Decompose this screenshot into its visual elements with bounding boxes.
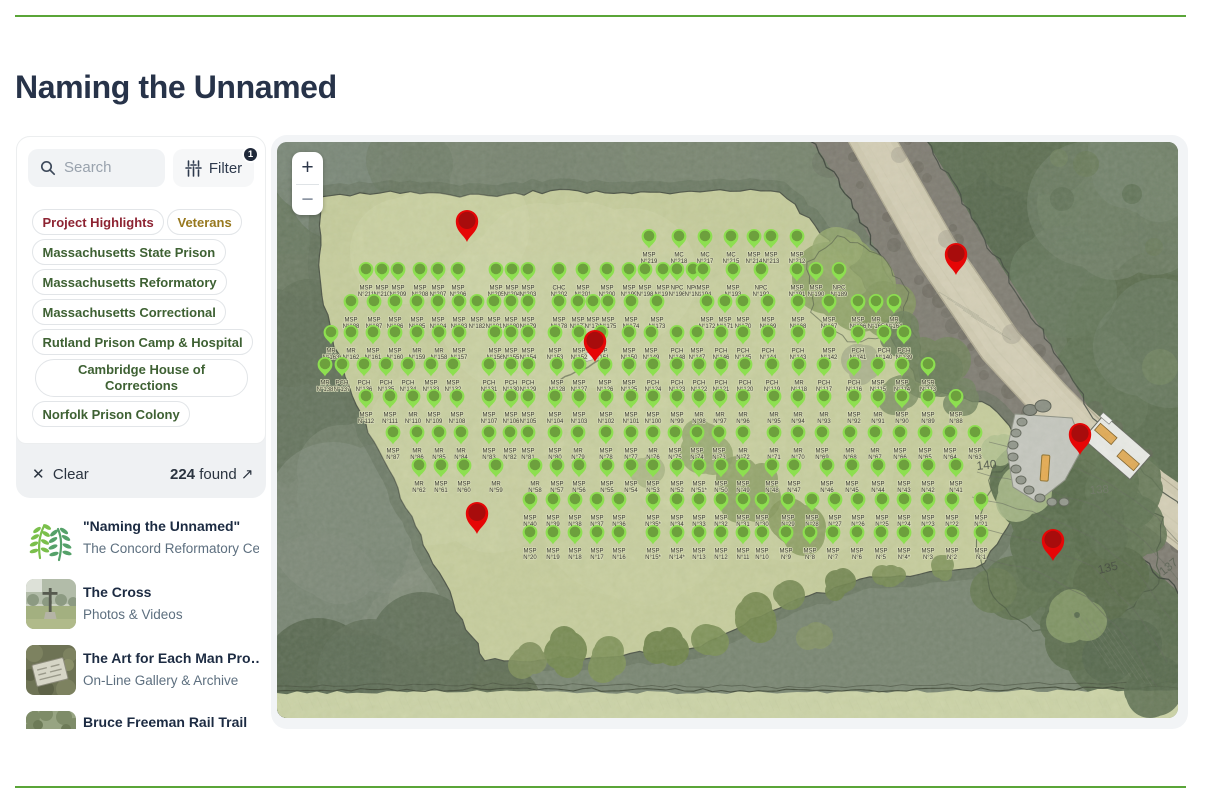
svg-text:N°89: N°89 [921, 419, 935, 425]
svg-text:N°82: N°82 [503, 455, 517, 461]
svg-text:MSP: MSP [822, 318, 835, 324]
svg-text:MSP: MSP [949, 413, 962, 419]
svg-text:MSP: MSP [521, 318, 534, 324]
svg-text:MSP: MSP [650, 318, 663, 324]
svg-text:MR: MR [326, 349, 336, 355]
svg-text:MSP: MSP [736, 549, 749, 555]
svg-text:N°60: N°60 [457, 488, 471, 494]
svg-text:MSP: MSP [692, 482, 705, 488]
svg-text:MSP: MSP [668, 449, 681, 455]
svg-text:MSP: MSP [656, 286, 669, 292]
svg-text:MSP: MSP [670, 549, 683, 555]
svg-text:MSP: MSP [921, 516, 934, 522]
svg-text:N°20: N°20 [523, 555, 537, 561]
svg-text:MSP: MSP [599, 413, 612, 419]
svg-text:MSP: MSP [388, 349, 401, 355]
svg-text:MSP: MSP [489, 286, 502, 292]
svg-text:N°110: N°110 [405, 419, 422, 425]
svg-text:MSP: MSP [601, 318, 614, 324]
svg-text:MSP: MSP [918, 449, 931, 455]
svg-text:PCH: PCH [671, 349, 684, 355]
svg-text:MSP: MSP [572, 349, 585, 355]
svg-text:MR: MR [573, 449, 583, 455]
svg-text:NPC: NPC [833, 286, 846, 292]
svg-text:MSP: MSP [815, 449, 828, 455]
svg-text:N°111: N°111 [382, 419, 399, 425]
svg-text:MSP: MSP [571, 318, 584, 324]
svg-text:MSP: MSP [755, 516, 768, 522]
svg-text:MSP: MSP [451, 286, 464, 292]
svg-text:MSP: MSP [452, 318, 465, 324]
svg-text:N°11: N°11 [737, 555, 751, 561]
svg-text:MSP: MSP [521, 349, 534, 355]
svg-text:N°100: N°100 [645, 419, 662, 425]
svg-text:MR: MR [794, 381, 804, 387]
svg-text:N°19: N°19 [546, 555, 560, 561]
svg-text:N°138: N°138 [317, 387, 334, 393]
svg-text:N°9: N°9 [781, 555, 792, 561]
svg-text:MSP: MSP [945, 516, 958, 522]
svg-text:MSP: MSP [548, 349, 561, 355]
svg-text:N°62: N°62 [412, 488, 426, 494]
svg-text:MSP: MSP [875, 516, 888, 522]
svg-text:N°107: N°107 [481, 419, 498, 425]
svg-text:NPC: NPC [671, 286, 684, 292]
svg-text:MSP: MSP [670, 516, 683, 522]
svg-text:MR: MR [346, 349, 356, 355]
svg-text:N°196: N°196 [669, 292, 686, 298]
svg-text:PCH: PCH [693, 381, 706, 387]
svg-text:MSP: MSP [427, 413, 440, 419]
svg-text:MSP: MSP [644, 349, 657, 355]
svg-text:MSP: MSP [690, 349, 703, 355]
svg-text:MSP: MSP [504, 318, 517, 324]
svg-text:N°13: N°13 [692, 555, 706, 561]
svg-text:MSP: MSP [692, 549, 705, 555]
svg-text:MSP: MSP [790, 286, 803, 292]
svg-text:MSP: MSP [482, 449, 495, 455]
svg-text:MR: MR [738, 413, 748, 419]
svg-text:MSP: MSP [921, 413, 934, 419]
svg-text:MR: MR [889, 318, 899, 324]
svg-text:MSP: MSP [504, 349, 517, 355]
svg-text:PCH: PCH [792, 349, 805, 355]
svg-text:MSP: MSP [413, 286, 426, 292]
svg-text:MSP: MSP [893, 449, 906, 455]
svg-text:MSP: MSP [523, 549, 536, 555]
svg-text:N°105: N°105 [520, 419, 537, 425]
svg-text:PCH: PCH [715, 381, 728, 387]
svg-text:MR: MR [456, 449, 466, 455]
svg-text:MSP: MSP [488, 349, 501, 355]
svg-text:PCH: PCH [878, 349, 891, 355]
svg-text:NPC: NPC [755, 286, 768, 292]
svg-text:MSP: MSP [622, 286, 635, 292]
svg-text:MSP: MSP [871, 381, 884, 387]
svg-text:MR: MR [320, 381, 330, 387]
svg-text:MSP: MSP [820, 482, 833, 488]
svg-text:MSP: MSP [700, 318, 713, 324]
svg-text:N°91: N°91 [871, 419, 885, 425]
svg-text:MSP: MSP [791, 318, 804, 324]
svg-text:MSP: MSP [949, 482, 962, 488]
svg-text:MSP: MSP [897, 549, 910, 555]
svg-text:MSP: MSP [871, 482, 884, 488]
svg-text:MSP: MSP [548, 449, 561, 455]
svg-text:MSP: MSP [712, 449, 725, 455]
svg-text:MSP: MSP [670, 413, 683, 419]
svg-text:MSP: MSP [845, 482, 858, 488]
svg-text:MSP: MSP [809, 286, 822, 292]
svg-text:N°3: N°3 [923, 555, 934, 561]
svg-text:N°4*: N°4* [898, 555, 911, 561]
svg-text:MSR: MSR [921, 381, 935, 387]
svg-text:MSP: MSP [546, 549, 559, 555]
svg-text:MSP: MSP [714, 482, 727, 488]
svg-text:MSP: MSP [692, 516, 705, 522]
svg-text:MSP: MSP [805, 516, 818, 522]
svg-text:MSP: MSP [736, 482, 749, 488]
svg-text:PCH: PCH [739, 381, 752, 387]
svg-text:N°15*: N°15* [645, 555, 661, 561]
svg-text:MSP: MSP [367, 318, 380, 324]
svg-text:MSP: MSP [431, 286, 444, 292]
svg-text:MSP: MSP [638, 286, 651, 292]
svg-text:MSP: MSP [764, 253, 777, 259]
svg-text:MC: MC [726, 253, 736, 259]
svg-text:MSP: MSP [550, 482, 563, 488]
svg-text:MR: MR [412, 349, 422, 355]
svg-text:MSP: MSP [897, 516, 910, 522]
svg-text:MSP: MSP [366, 349, 379, 355]
svg-text:MR: MR [408, 413, 418, 419]
svg-text:MSP: MSP [386, 449, 399, 455]
svg-text:MSP: MSP [895, 413, 908, 419]
svg-text:MSP: MSP [622, 381, 635, 387]
svg-text:PCH: PCH [671, 381, 684, 387]
svg-text:N°182: N°182 [469, 324, 486, 330]
svg-text:MC: MC [700, 253, 710, 259]
svg-text:MSP: MSP [359, 286, 372, 292]
svg-text:PCH: PCH [522, 381, 535, 387]
svg-text:MSP: MSP [446, 381, 459, 387]
svg-text:MSP: MSP [781, 516, 794, 522]
svg-text:MR: MR [793, 449, 803, 455]
svg-text:PCH: PCH [402, 381, 415, 387]
svg-text:MSP: MSP [487, 318, 500, 324]
svg-text:MSP: MSP [600, 482, 613, 488]
svg-text:MSP: MSP [851, 318, 864, 324]
svg-text:N°109: N°109 [426, 419, 443, 425]
svg-text:MSP: MSP [696, 286, 709, 292]
svg-text:MSP: MSP [505, 286, 518, 292]
svg-text:MSP: MSP [714, 516, 727, 522]
svg-text:MSP: MSP [572, 381, 585, 387]
svg-text:MR: MR [434, 449, 444, 455]
svg-text:MSP: MSP [624, 482, 637, 488]
svg-text:MSP: MSP [600, 286, 613, 292]
svg-text:MSP: MSP [388, 318, 401, 324]
svg-text:MSP: MSP [552, 318, 565, 324]
svg-text:N°95: N°95 [767, 419, 781, 425]
svg-text:PCH: PCH [380, 381, 393, 387]
svg-text:MSP: MSP [646, 482, 659, 488]
svg-text:N°16: N°16 [612, 555, 626, 561]
svg-text:PCH: PCH [336, 381, 349, 387]
svg-text:PCH: PCH [715, 349, 728, 355]
svg-text:N°103: N°103 [571, 419, 588, 425]
svg-text:MSP: MSP [572, 482, 585, 488]
svg-text:MSP: MSP [457, 482, 470, 488]
svg-text:MSP: MSP [523, 516, 536, 522]
svg-text:MSP: MSP [375, 286, 388, 292]
svg-text:N°93: N°93 [817, 419, 831, 425]
svg-text:MSP: MSP [624, 413, 637, 419]
svg-text:N°88: N°88 [949, 419, 963, 425]
svg-text:N°55: N°55 [600, 488, 614, 494]
svg-text:PCH: PCH [852, 349, 865, 355]
svg-text:MSP: MSP [736, 318, 749, 324]
svg-text:MSP: MSP [974, 516, 987, 522]
svg-text:MSP: MSP [874, 549, 887, 555]
svg-text:MSP: MSP [568, 549, 581, 555]
svg-text:MSP: MSP [503, 449, 516, 455]
svg-text:MSP: MSP [452, 349, 465, 355]
svg-text:MSP: MSP [897, 482, 910, 488]
svg-text:MSP: MSP [851, 516, 864, 522]
svg-text:MSP: MSP [921, 549, 934, 555]
svg-text:N°94: N°94 [791, 419, 805, 425]
svg-text:MR: MR [870, 449, 880, 455]
svg-text:MSP: MSP [850, 549, 863, 555]
svg-text:MSP: MSP [504, 413, 517, 419]
svg-text:MSP: MSP [521, 286, 534, 292]
svg-text:MSP: MSP [598, 381, 611, 387]
svg-text:MR: MR [845, 449, 855, 455]
svg-text:N°63: N°63 [968, 455, 982, 461]
svg-text:MSP: MSP [895, 381, 908, 387]
svg-text:MSP: MSP [670, 482, 683, 488]
svg-text:N°112: N°112 [358, 419, 375, 425]
svg-text:MSP: MSP [714, 549, 727, 555]
svg-text:MSP: MSP [521, 449, 534, 455]
svg-text:MR: MR [873, 413, 883, 419]
svg-text:N°14*: N°14* [669, 555, 685, 561]
svg-text:MSP: MSP [943, 449, 956, 455]
svg-text:MSP: MSP [828, 516, 841, 522]
svg-text:MSP: MSP [624, 318, 637, 324]
svg-text:MSP: MSP [642, 253, 655, 259]
svg-text:PCH: PCH [483, 381, 496, 387]
svg-text:N°18: N°18 [568, 555, 582, 561]
svg-text:N°97: N°97 [713, 419, 727, 425]
svg-text:MSP: MSP [431, 318, 444, 324]
svg-text:N°7: N°7 [828, 555, 839, 561]
svg-text:MSP: MSP [612, 549, 625, 555]
svg-text:MR: MR [871, 318, 881, 324]
svg-text:MR: MR [530, 482, 540, 488]
svg-text:MC: MC [674, 253, 684, 259]
svg-text:PCH: PCH [898, 349, 911, 355]
svg-text:MR: MR [715, 413, 725, 419]
svg-text:PCH: PCH [505, 381, 518, 387]
svg-text:MSP: MSP [646, 516, 659, 522]
svg-text:MSP: MSP [622, 349, 635, 355]
svg-text:MSP: MSP [599, 449, 612, 455]
svg-text:N°48: N°48 [765, 488, 779, 494]
svg-text:MSP: MSP [726, 286, 739, 292]
svg-text:MSP: MSP [548, 413, 561, 419]
svg-text:MSP: MSP [576, 286, 589, 292]
svg-text:MSP: MSP [450, 413, 463, 419]
svg-text:MSP: MSP [765, 482, 778, 488]
svg-text:N°10: N°10 [755, 555, 769, 561]
svg-text:MSP: MSP [434, 482, 447, 488]
svg-text:MSP: MSP [790, 253, 803, 259]
svg-text:MR: MR [769, 449, 779, 455]
svg-text:N°98: N°98 [692, 419, 706, 425]
svg-text:N°8: N°8 [805, 555, 816, 561]
svg-text:MSP: MSP [391, 286, 404, 292]
svg-text:MSP: MSP [624, 449, 637, 455]
svg-text:MR: MR [414, 482, 424, 488]
svg-text:MSP: MSP [755, 549, 768, 555]
svg-text:N°137: N°137 [334, 387, 351, 393]
svg-text:N°59: N°59 [489, 488, 503, 494]
svg-text:MSP: MSP [826, 549, 839, 555]
svg-text:MR: MR [819, 413, 829, 419]
svg-text:MSP: MSP [787, 482, 800, 488]
svg-text:MSP: MSP [968, 449, 981, 455]
svg-text:PCH: PCH [647, 381, 660, 387]
svg-text:MSP: MSP [921, 482, 934, 488]
svg-text:MR: MR [694, 413, 704, 419]
svg-text:MSP: MSP [974, 549, 987, 555]
svg-text:CHC: CHC [553, 286, 567, 292]
svg-text:MSP: MSP [803, 549, 816, 555]
svg-text:N°102: N°102 [598, 419, 615, 425]
svg-text:MR: MR [648, 449, 658, 455]
svg-text:MSP: MSP [482, 413, 495, 419]
svg-text:PCH: PCH [766, 381, 779, 387]
svg-text:MSP: MSP [521, 413, 534, 419]
svg-text:MSP: MSP [822, 349, 835, 355]
svg-text:N°92: N°92 [847, 419, 861, 425]
svg-text:PCH: PCH [762, 349, 775, 355]
svg-text:MR: MR [769, 413, 779, 419]
svg-text:N°87: N°87 [386, 455, 400, 461]
svg-text:N°2: N°2 [947, 555, 958, 561]
svg-text:N°190: N°190 [808, 292, 825, 298]
svg-text:N°61: N°61 [434, 488, 448, 494]
svg-text:PCH: PCH [848, 381, 861, 387]
svg-text:MSP: MSP [550, 381, 563, 387]
svg-text:MSP: MSP [736, 516, 749, 522]
svg-text:MSP: MSP [590, 516, 603, 522]
svg-text:PCH: PCH [358, 381, 371, 387]
svg-text:MR: MR [738, 449, 748, 455]
svg-text:MSP: MSP [590, 549, 603, 555]
svg-text:N°5: N°5 [876, 555, 887, 561]
svg-text:MSP: MSP [690, 449, 703, 455]
svg-text:MSP: MSP [612, 516, 625, 522]
svg-text:MSP: MSP [568, 516, 581, 522]
svg-text:N°6: N°6 [852, 555, 863, 561]
svg-text:N°99: N°99 [670, 419, 684, 425]
svg-text:MSP: MSP [344, 318, 357, 324]
svg-text:MSP: MSP [718, 318, 731, 324]
svg-text:N°96: N°96 [736, 419, 750, 425]
svg-text:MSP: MSP [586, 318, 599, 324]
svg-text:MSP: MSP [646, 413, 659, 419]
svg-text:N°54: N°54 [624, 488, 638, 494]
svg-text:MSP: MSP [747, 253, 760, 259]
svg-text:N°108: N°108 [449, 419, 466, 425]
svg-text:MSP: MSP [383, 413, 396, 419]
svg-text:MSP: MSP [761, 318, 774, 324]
svg-text:MSP: MSP [572, 413, 585, 419]
svg-text:MSP: MSP [470, 318, 483, 324]
svg-text:N°90: N°90 [895, 419, 909, 425]
svg-text:MSP: MSP [779, 549, 792, 555]
svg-text:MR: MR [491, 482, 501, 488]
svg-text:N°1: N°1 [976, 555, 987, 561]
svg-text:MSP: MSP [945, 549, 958, 555]
svg-text:PCH: PCH [818, 381, 831, 387]
svg-text:N°17: N°17 [590, 555, 604, 561]
svg-text:MR: MR [793, 413, 803, 419]
svg-text:N°104: N°104 [547, 419, 564, 425]
svg-text:PCH: PCH [737, 349, 750, 355]
svg-text:N°12: N°12 [714, 555, 728, 561]
svg-text:MSP: MSP [410, 318, 423, 324]
svg-text:MR: MR [434, 349, 444, 355]
svg-text:MSP: MSP [847, 413, 860, 419]
svg-text:MSP: MSP [424, 381, 437, 387]
svg-text:MSP: MSP [546, 516, 559, 522]
svg-text:MSP: MSP [646, 549, 659, 555]
svg-text:N°101: N°101 [623, 419, 640, 425]
svg-text:N°106: N°106 [503, 419, 520, 425]
svg-text:MR: MR [412, 449, 422, 455]
svg-text:MSP: MSP [359, 413, 372, 419]
